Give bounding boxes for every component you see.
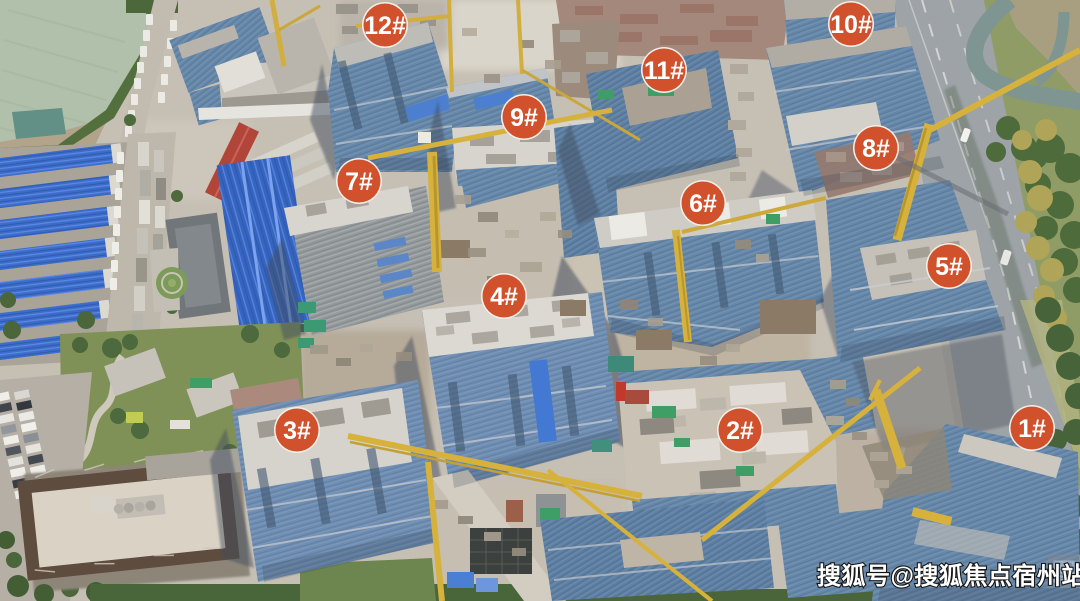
svg-text:2#: 2# — [726, 417, 754, 445]
svg-text:1#: 1# — [1018, 415, 1046, 443]
svg-text:5#: 5# — [935, 253, 963, 281]
svg-text:12#: 12# — [364, 12, 406, 40]
svg-text:搜狐号@搜狐焦点宿州站: 搜狐号@搜狐焦点宿州站 — [817, 562, 1080, 590]
svg-text:4#: 4# — [490, 283, 518, 311]
svg-text:3#: 3# — [283, 417, 311, 445]
svg-text:9#: 9# — [510, 104, 538, 132]
svg-text:10#: 10# — [830, 11, 872, 39]
svg-text:6#: 6# — [689, 190, 717, 218]
svg-text:7#: 7# — [345, 168, 373, 196]
svg-text:11#: 11# — [644, 57, 684, 85]
svg-text:8#: 8# — [862, 135, 890, 163]
